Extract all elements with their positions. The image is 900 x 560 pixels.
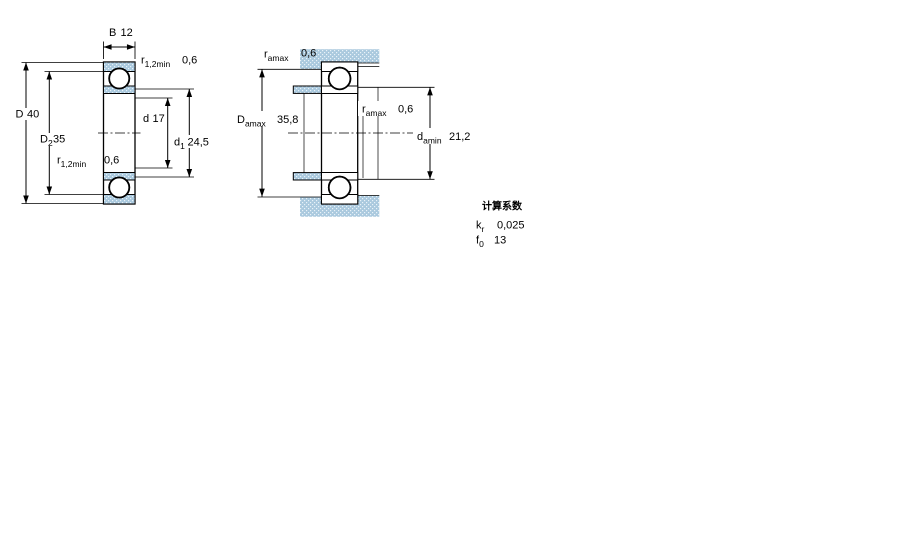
dim-value-d: 17 (153, 113, 165, 125)
abutment-fillet-value-top: 0,6 (301, 48, 316, 60)
shaft-shoulder-bottom (293, 173, 322, 180)
abutment-fillet-value-mid: 0,6 (398, 104, 413, 116)
ball-top-right (329, 68, 350, 89)
factor-f0-label: f0 (476, 235, 484, 250)
fillet-value-top: 0,6 (182, 55, 197, 67)
factor-kr-label: kr (476, 220, 485, 235)
ball-bottom-right (329, 177, 350, 198)
factor-kr-value: 0,025 (497, 220, 525, 232)
dim-label-D: D (16, 109, 24, 121)
left-view-bearing-section (98, 62, 141, 204)
shaft-shoulder-top (293, 86, 322, 93)
ball-top (110, 69, 129, 88)
ball-bottom (110, 178, 129, 197)
dim-value-damin: 21,2 (449, 131, 470, 143)
dim-value-Damax: 35,8 (277, 114, 298, 126)
dim-label-d: d (143, 113, 149, 125)
abutment-fillet-label-top: ramax (264, 49, 289, 64)
calculation-factors: 计算系数 kr 0,025 f0 13 (476, 200, 525, 250)
dim-value-D2: 35 (53, 134, 65, 146)
bearing-technical-drawing: B 12 D 40 D2 35 d 17 d1 24,5 r1,2min 0,6… (0, 0, 900, 560)
fillet-label-bottom: r1,2min (57, 155, 86, 170)
fillet-label-top: r1,2min (141, 55, 170, 70)
calc-factors-title: 计算系数 (482, 200, 523, 213)
dim-value-d1: 24,5 (188, 137, 209, 149)
fillet-value-bottom: 0,6 (104, 155, 119, 167)
dim-value-D: 40 (27, 109, 39, 121)
factor-f0-value: 13 (494, 235, 506, 247)
bearing-drawing-page: B 12 D 40 D2 35 d 17 d1 24,5 r1,2min 0,6… (0, 0, 900, 560)
dim-label-B: B (109, 27, 116, 39)
dim-value-B: 12 (121, 27, 133, 39)
